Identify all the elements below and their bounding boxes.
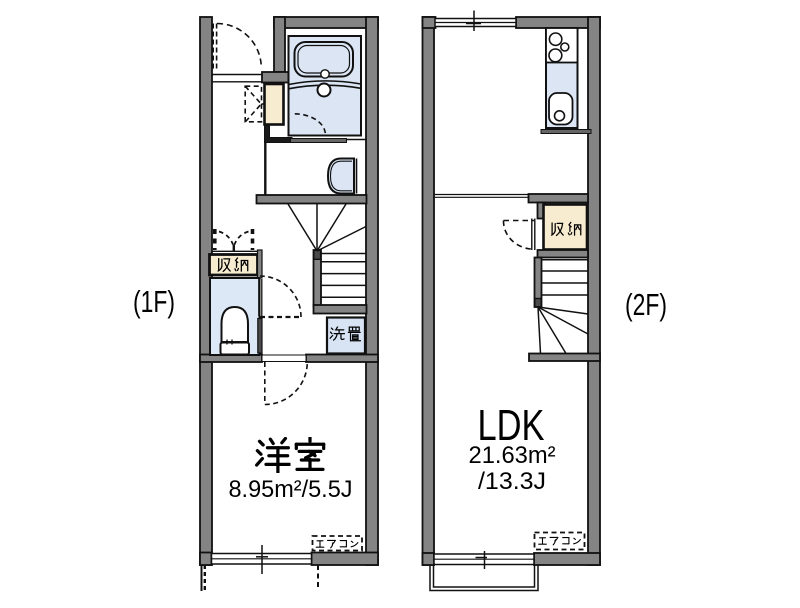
svg-text:(2F): (2F) bbox=[625, 287, 667, 322]
svg-text:/13.3J: /13.3J bbox=[478, 468, 546, 495]
svg-text:21.63m²: 21.63m² bbox=[469, 442, 556, 469]
svg-text:8.95m²/5.5J: 8.95m²/5.5J bbox=[229, 476, 353, 503]
svg-text:(1F): (1F) bbox=[133, 284, 175, 319]
